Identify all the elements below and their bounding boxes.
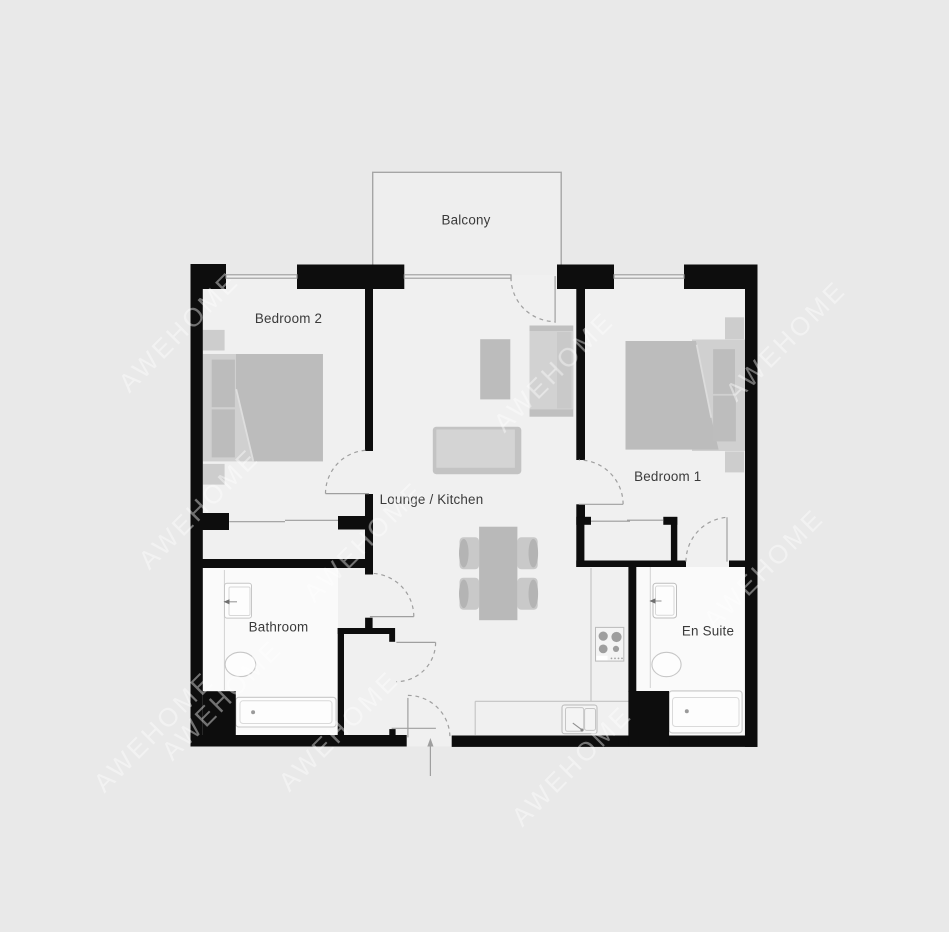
svg-text:Bedroom 2: Bedroom 2 [255,311,322,326]
svg-text:Bathroom: Bathroom [249,619,309,634]
svg-text:Balcony: Balcony [441,213,490,228]
svg-text:Bedroom 1: Bedroom 1 [634,469,701,484]
